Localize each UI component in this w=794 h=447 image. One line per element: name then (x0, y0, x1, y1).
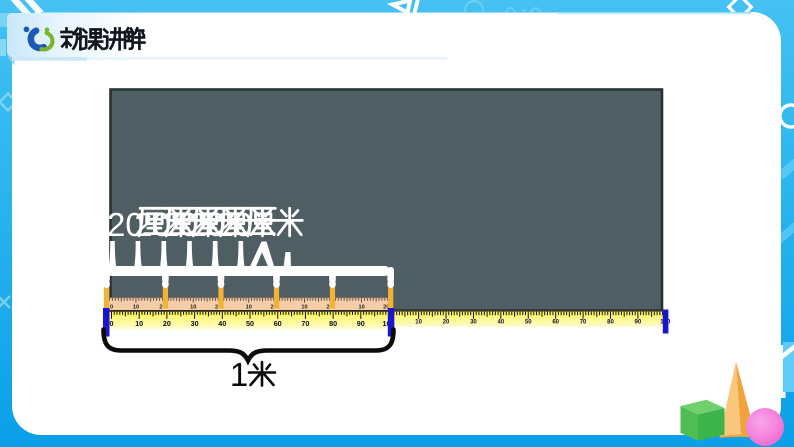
svg-text:0: 0 (110, 304, 113, 310)
svg-text:1: 1 (230, 356, 248, 393)
svg-text:50: 50 (525, 320, 532, 326)
svg-text:50: 50 (246, 319, 254, 328)
svg-text:20: 20 (216, 206, 253, 243)
svg-text:10: 10 (358, 304, 364, 310)
svg-text:90: 90 (357, 319, 365, 328)
svg-text:2: 2 (326, 304, 329, 310)
svg-text:10: 10 (246, 304, 252, 310)
svg-text:30: 30 (191, 319, 199, 328)
svg-text:30: 30 (470, 320, 477, 326)
svg-text:10: 10 (301, 304, 307, 310)
svg-text:10: 10 (133, 304, 139, 310)
svg-text:80: 80 (329, 319, 337, 328)
svg-text:90: 90 (635, 320, 642, 326)
svg-text:2: 2 (270, 304, 273, 310)
svg-text:10: 10 (135, 319, 143, 328)
svg-text:60: 60 (274, 319, 282, 328)
svg-text:10: 10 (415, 320, 422, 326)
svg-text:2: 2 (215, 304, 218, 310)
svg-text:20: 20 (163, 319, 171, 328)
svg-text:70: 70 (580, 320, 587, 326)
svg-text:40: 40 (497, 320, 504, 326)
svg-text:80: 80 (607, 320, 614, 326)
svg-text:60: 60 (552, 320, 559, 326)
svg-text:20: 20 (443, 320, 450, 326)
svg-text:70: 70 (301, 319, 309, 328)
svg-text:0: 0 (110, 319, 114, 328)
svg-text:2: 2 (159, 304, 162, 310)
svg-text:40: 40 (218, 319, 226, 328)
svg-text:10: 10 (190, 304, 196, 310)
